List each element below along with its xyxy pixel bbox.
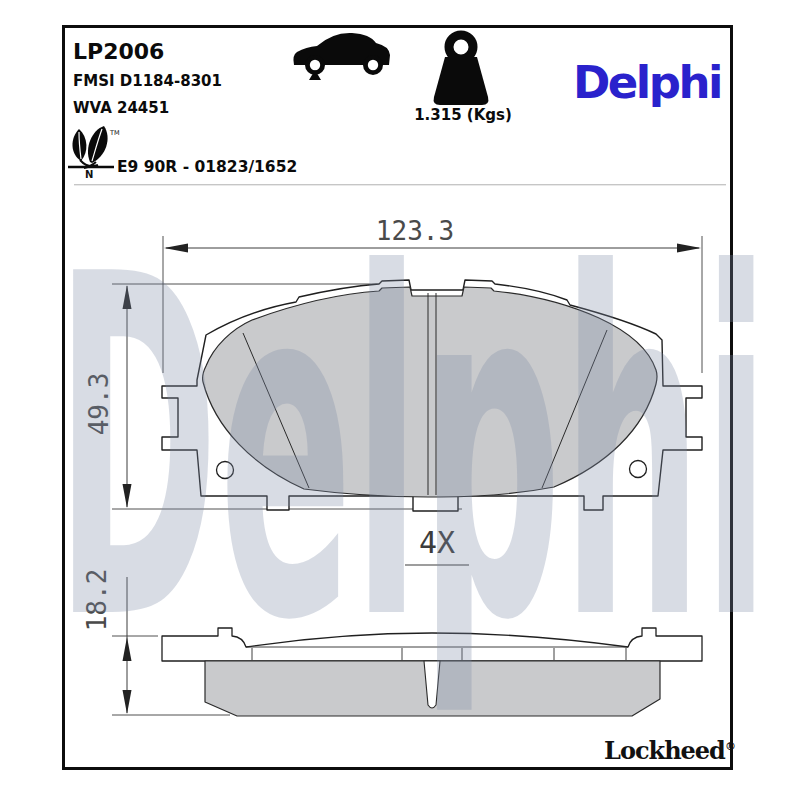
technical-drawing: 123.3 49.3 4X [0, 0, 800, 800]
watermark-text: Delphi [55, 176, 770, 723]
label-sheet: LP2006 FMSI D1184-8301 WVA 24451 Delphi … [0, 0, 800, 800]
